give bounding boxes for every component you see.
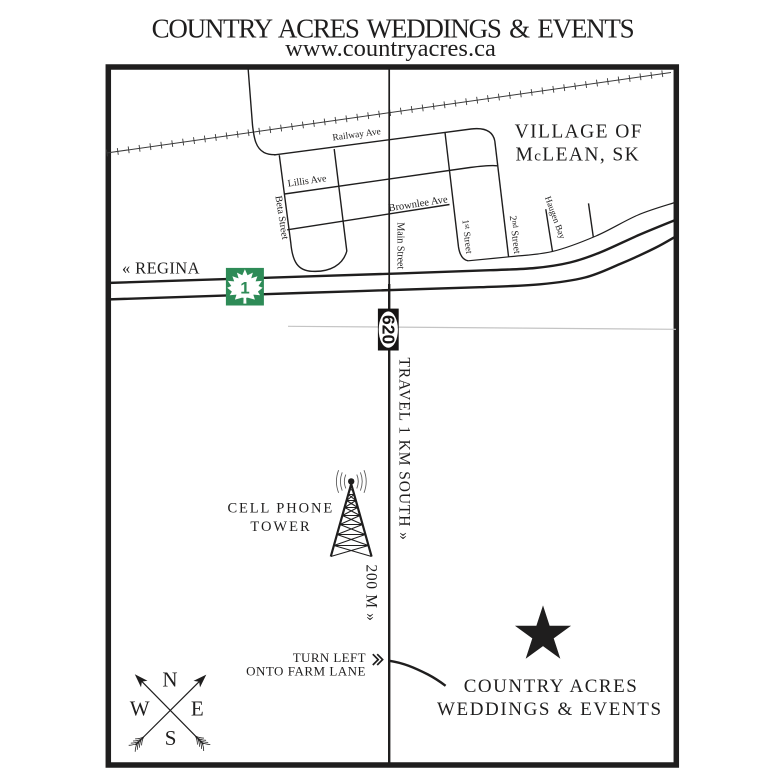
svg-text:620: 620 [378, 315, 398, 344]
svg-text:CELL PHONE: CELL PHONE [227, 500, 334, 516]
svg-text:200 M »: 200 M » [362, 565, 379, 622]
svg-text:1: 1 [240, 279, 249, 298]
svg-text:TURN LEFT: TURN LEFT [293, 650, 366, 665]
svg-text:WEDDINGS & EVENTS: WEDDINGS & EVENTS [437, 699, 663, 720]
svg-text:E: E [191, 697, 204, 721]
svg-text:N: N [162, 668, 177, 692]
svg-text:S: S [165, 726, 177, 750]
svg-text:VILLAGE OF: VILLAGE OF [515, 122, 643, 143]
svg-text:ONTO FARM LANE: ONTO FARM LANE [246, 664, 366, 679]
svg-text:TOWER: TOWER [250, 519, 311, 535]
svg-text:Main Street: Main Street [395, 222, 406, 269]
svg-text:« REGINA: « REGINA [122, 259, 200, 278]
svg-text:W: W [130, 697, 150, 721]
svg-text:COUNTRY ACRES: COUNTRY ACRES [464, 676, 639, 697]
svg-text:www.countryacres.ca: www.countryacres.ca [285, 35, 496, 62]
svg-text:McLEAN, SK: McLEAN, SK [515, 144, 640, 165]
svg-text:TRAVEL 1 KM SOUTH »: TRAVEL 1 KM SOUTH » [396, 358, 413, 541]
